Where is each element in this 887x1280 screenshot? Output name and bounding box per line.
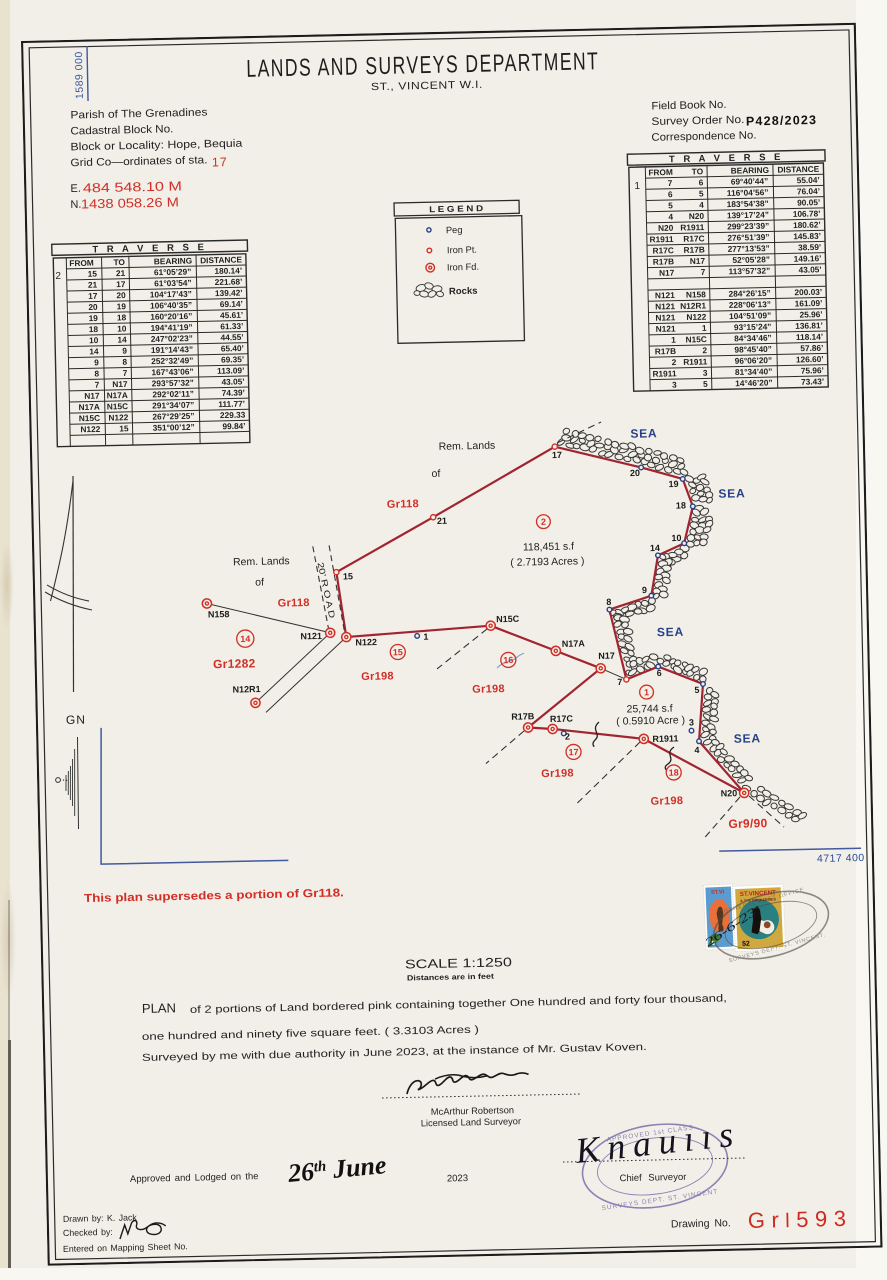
svg-text:Gr198: Gr198 [650,795,683,808]
svg-text:180.14’: 180.14’ [214,265,242,276]
svg-text:20: 20 [88,302,98,312]
svg-text:Entered on Mapping Sheet N: Entered on Mapping Sheet No. [63,1241,188,1254]
svg-text:N121: N121 [655,301,675,311]
svg-text:9: 9 [94,357,99,367]
svg-text:N17: N17 [690,256,706,266]
svg-text:5: 5 [703,379,708,389]
svg-text:R1911: R1911 [649,234,674,245]
svg-text:2: 2 [55,271,61,282]
svg-text:TO: TO [692,166,704,176]
svg-text:BEARING: BEARING [731,165,769,176]
svg-text:84°34’46”: 84°34’46” [734,333,772,344]
svg-text:T R A V E R S E: T R A V E R S E [669,152,784,165]
svg-text:98°45’40”: 98°45’40” [734,344,772,355]
svg-text:N158: N158 [208,609,230,619]
svg-text:Block or Locality: Hope, B: Block or Locality: Hope, Bequia [70,138,242,154]
svg-text:183°54’38”: 183°54’38” [727,198,769,209]
svg-text:17: 17 [116,279,126,289]
svg-text:N122: N122 [355,637,377,647]
svg-text:ST., VINCENT W.I.: ST., VINCENT W.I. [371,79,483,93]
svg-text:N17A: N17A [562,638,586,649]
svg-text:180.62’: 180.62’ [793,219,821,230]
svg-text:20: 20 [116,290,126,300]
svg-text:N122: N122 [108,412,128,422]
svg-text:N121: N121 [300,631,322,641]
svg-text:N121: N121 [655,290,675,300]
svg-text:228°06’13”: 228°06’13” [729,299,771,310]
svg-text:21: 21 [88,280,98,290]
svg-text:N15C: N15C [79,413,100,423]
svg-text:116°04’56”: 116°04’56” [727,187,769,198]
svg-text:15: 15 [393,647,403,657]
svg-text:P428/2023: P428/2023 [746,113,818,129]
svg-text:200.03’: 200.03’ [794,287,822,298]
svg-text:3: 3 [689,717,694,727]
svg-text:25.96’: 25.96’ [799,309,822,320]
svg-text:25,744 s.f: 25,744 s.f [626,703,672,716]
svg-text:113.09’: 113.09’ [217,365,244,376]
svg-text:N17A: N17A [107,390,128,400]
svg-text:N15C: N15C [496,614,520,625]
svg-text:104°51’09”: 104°51’09” [729,310,771,321]
svg-text:43.05’: 43.05’ [798,264,821,275]
svg-text:55.04’: 55.04’ [797,175,820,186]
svg-text:93°15’24”: 93°15’24” [734,321,772,332]
svg-text:R17B: R17B [653,256,674,266]
svg-text:SEA: SEA [630,426,657,441]
svg-text:15: 15 [343,571,353,581]
svg-text:Iron Pt.: Iron Pt. [447,245,477,256]
svg-text:3: 3 [703,368,708,378]
svg-text:1: 1 [702,323,707,333]
svg-text:16: 16 [503,655,513,665]
svg-text:18: 18 [117,312,127,322]
svg-text:N20: N20 [658,223,674,233]
svg-text:136.81’: 136.81’ [795,320,823,331]
svg-text:194°41’19”: 194°41’19” [150,322,192,333]
svg-text:351°00’12”: 351°00’12” [153,422,195,433]
svg-text:10: 10 [89,335,99,345]
svg-text:GN: GN [66,713,86,727]
svg-text:1589 000: 1589 000 [73,51,86,99]
svg-text:8: 8 [94,368,99,378]
svg-text:N17: N17 [598,651,615,661]
svg-text:106°40’35”: 106°40’35” [150,300,192,311]
svg-text:191°14’43”: 191°14’43” [151,344,193,355]
svg-text:69.14’: 69.14’ [220,299,243,310]
svg-text:N17A: N17A [78,402,99,412]
svg-text:Chief Surveyor: Chief Surveyor [619,1172,686,1184]
svg-text:2: 2 [541,517,546,527]
svg-text:17: 17 [212,155,228,169]
svg-text:6: 6 [699,177,704,187]
svg-text:DISTANCE: DISTANCE [200,254,242,265]
svg-text:61°05’29”: 61°05’29” [154,266,192,277]
svg-text:Iron Fd.: Iron Fd. [447,262,479,273]
svg-text:14°46’20”: 14°46’20” [735,377,773,388]
svg-text:Gr118: Gr118 [278,597,310,610]
svg-text:160°20’16”: 160°20’16” [150,311,192,322]
svg-text:Cadastral Block No.: Cadastral Block No. [70,123,173,137]
svg-text:N17: N17 [84,391,100,401]
svg-text:1: 1 [671,335,676,345]
svg-text:61°03’54”: 61°03’54” [154,278,192,289]
svg-text:Distances are in feet: Distances are in feet [407,972,495,983]
svg-text:293°57’32”: 293°57’32” [152,377,194,388]
svg-text:PLAN: PLAN [142,1000,176,1016]
svg-text:17: 17 [88,291,98,301]
svg-text:2023: 2023 [447,1173,468,1184]
svg-text:Drawing No.: Drawing No. [671,1217,731,1230]
svg-text:one hundred and ninety fiv: one hundred and ninety five square feet.… [142,1025,479,1043]
svg-text:284°26’15”: 284°26’15” [728,288,770,299]
svg-text:4: 4 [694,745,699,755]
svg-text:R17C: R17C [683,233,704,243]
svg-text:167°43’06”: 167°43’06” [151,366,193,377]
svg-text:R1911: R1911 [652,368,677,379]
svg-text:T R A V E R S E: T R A V E R S E [92,242,207,255]
svg-text:65.40’: 65.40’ [221,343,244,354]
svg-text:14: 14 [650,543,660,553]
svg-text:75.96’: 75.96’ [801,365,824,376]
svg-text:5: 5 [699,188,704,198]
svg-text:14: 14 [117,334,127,344]
svg-text:of: of [255,576,264,588]
svg-text:21: 21 [437,516,447,526]
svg-text:111.77’: 111.77’ [218,398,245,409]
svg-text:N20: N20 [689,211,705,221]
svg-text:18: 18 [676,500,686,510]
svg-text:8: 8 [122,357,127,367]
svg-text:252°32’49”: 252°32’49” [151,355,193,366]
svg-text:1438 058.26 M: 1438 058.26 M [81,194,179,211]
svg-text:2: 2 [672,357,677,367]
svg-text:4717 400: 4717 400 [817,852,865,865]
svg-text:Gr198: Gr198 [472,683,505,696]
svg-text:R17B: R17B [511,711,535,722]
svg-text:( 2.7193 Acres ): ( 2.7193 Acres ) [510,555,584,569]
svg-text:17: 17 [552,450,562,460]
svg-text:15: 15 [88,268,98,278]
svg-text:SEA: SEA [734,731,761,746]
svg-text:Surveyed by me with due a: Surveyed by me with due authority in Jun… [142,1042,647,1064]
svg-text:52°05’28”: 52°05’28” [732,254,770,265]
svg-text:5: 5 [668,200,673,210]
svg-text:10: 10 [117,323,127,333]
svg-text:38.59’: 38.59’ [798,242,821,253]
svg-text:118.14’: 118.14’ [796,331,823,342]
svg-text:L E G E N D: L E G E N D [429,203,483,214]
svg-text:14: 14 [89,346,99,356]
svg-text:9: 9 [642,585,647,595]
svg-text:69°40’44”: 69°40’44” [731,176,769,187]
svg-text:$2: $2 [742,941,750,948]
svg-text:Approved and Lodged on the: Approved and Lodged on the [130,1171,259,1185]
svg-text:292°02’11”: 292°02’11” [152,389,194,400]
svg-text:3: 3 [672,379,677,389]
svg-text:99.84’: 99.84’ [222,421,245,432]
svg-text:LANDS AND SURVEYS DEPARTMEN: LANDS AND SURVEYS DEPARTMENT [246,48,600,83]
svg-text:7: 7 [95,379,100,389]
svg-text:R1911: R1911 [652,733,678,744]
svg-text:44.55’: 44.55’ [220,332,243,343]
svg-text:7: 7 [701,267,706,277]
svg-text:8: 8 [606,597,611,607]
svg-text:Checked by:: Checked by: [63,1227,113,1238]
svg-text:126.60’: 126.60’ [796,354,824,365]
svg-text:Gr198: Gr198 [361,670,394,683]
svg-text:15: 15 [119,423,129,433]
svg-text:ST.VI: ST.VI [711,889,725,896]
svg-text:6: 6 [657,668,662,678]
svg-text:N122: N122 [686,312,706,322]
svg-text:229.33: 229.33 [220,410,246,421]
svg-text:106.78’: 106.78’ [793,208,821,219]
svg-text:FROM: FROM [69,258,94,269]
svg-text:N17: N17 [112,379,128,389]
svg-text:N20: N20 [721,788,738,798]
svg-text:R17C: R17C [652,245,673,255]
svg-text:Rem. Lands: Rem. Lands [233,555,290,568]
svg-text:FROM: FROM [648,167,673,178]
svg-text:Correspondence No.: Correspondence No. [651,129,756,143]
svg-text:6: 6 [668,189,673,199]
svg-text:N121: N121 [656,323,676,333]
svg-text:McArthur Robertson: McArthur Robertson [431,1105,514,1117]
svg-text:73.43’: 73.43’ [801,376,824,387]
svg-text:118,451 s.f: 118,451 s.f [523,540,575,553]
svg-text:2: 2 [565,731,570,741]
svg-text:484 548.10 M: 484 548.10 M [83,178,182,195]
svg-text:Grid Co—ordinates of sta.: Grid Co—ordinates of sta. [70,154,207,169]
svg-text:45.61’: 45.61’ [220,310,243,321]
svg-text:R1911: R1911 [683,356,708,367]
svg-text:This plan supersedes a por: This plan supersedes a portion of Gr118. [84,887,344,905]
svg-text:1: 1 [634,181,640,192]
svg-text:N158: N158 [686,289,706,299]
svg-text:SEA: SEA [718,486,745,501]
svg-text:104°17’43”: 104°17’43” [150,289,192,300]
svg-text:267°29’25”: 267°29’25” [152,411,194,422]
svg-text:Rocks: Rocks [449,286,478,298]
svg-text:N12R1: N12R1 [680,300,706,311]
svg-text:18: 18 [89,324,99,334]
svg-text:Gr118: Gr118 [387,498,419,511]
svg-text:291°34’07”: 291°34’07” [152,400,194,411]
svg-text:Kпauııs: Kпauııs [573,1114,735,1171]
svg-text:90.05’: 90.05’ [797,197,820,208]
svg-text:Rem. Lands: Rem. Lands [439,440,496,453]
svg-text:N15C: N15C [685,334,706,344]
svg-text:19: 19 [669,479,679,489]
svg-text:4: 4 [668,212,673,222]
svg-text:( 0.5910 Acre ): ( 0.5910 Acre ) [616,714,685,727]
svg-text:Grl593: Grl593 [748,1206,853,1233]
svg-text:R17B: R17B [655,346,676,356]
svg-text:Gr1282: Gr1282 [213,656,256,671]
svg-text:7: 7 [123,368,128,378]
svg-text:74.39’: 74.39’ [222,387,245,398]
svg-text:21: 21 [116,268,126,278]
svg-text:Gr9/90: Gr9/90 [728,816,767,831]
svg-text:1: 1 [423,632,428,642]
svg-text:113°57’32”: 113°57’32” [728,265,770,276]
svg-text:139.42’: 139.42’ [215,288,243,299]
svg-text:N17: N17 [659,267,675,277]
svg-text:N15C: N15C [107,401,128,411]
svg-text:10: 10 [671,533,681,543]
svg-text:Parish of The Grenadines: Parish of The Grenadines [70,107,208,122]
svg-text:SCALE 1:1250: SCALE 1:1250 [405,955,512,971]
svg-text:96°06’20”: 96°06’20” [735,355,773,366]
svg-text:Survey Order No.: Survey Order No. [651,114,744,128]
svg-text:26th June: 26th June [286,1150,388,1188]
svg-text:221.68’: 221.68’ [215,276,243,287]
svg-text:43.05’: 43.05’ [221,376,244,387]
svg-text:Licensed Land Surveyor: Licensed Land Surveyor [421,1116,521,1128]
svg-text:7: 7 [617,677,622,687]
svg-text:of 2 portions of Land bor: of 2 portions of Land bordered pink cont… [190,993,727,1016]
svg-text:5: 5 [694,685,699,695]
svg-text:E.: E. [70,183,81,195]
svg-text:2: 2 [702,345,707,355]
svg-text:Peg: Peg [446,225,463,235]
svg-text:DISTANCE: DISTANCE [777,164,819,175]
svg-text:19: 19 [117,301,127,311]
svg-text:18: 18 [669,768,679,778]
svg-text:TO: TO [113,257,125,267]
svg-text:9: 9 [122,346,127,356]
svg-text:1: 1 [644,687,649,697]
svg-text:Gr198: Gr198 [541,767,574,780]
svg-text:19: 19 [89,313,99,323]
svg-text:R17B: R17B [683,244,704,254]
svg-text:BEARING: BEARING [154,256,192,267]
svg-text:61.33’: 61.33’ [220,321,243,332]
svg-text:Field Book No.: Field Book No. [651,99,726,113]
svg-text:57.86’: 57.86’ [800,343,823,354]
svg-text:149.16’: 149.16’ [794,253,822,264]
svg-text:7: 7 [668,178,673,188]
svg-text:277°13’53”: 277°13’53” [728,243,770,254]
svg-text:R1911: R1911 [680,222,705,233]
svg-text:N12R1: N12R1 [232,684,260,695]
svg-text:247°02’23”: 247°02’23” [151,333,193,344]
svg-text:139°17’24”: 139°17’24” [727,209,769,220]
svg-text:276°51’39”: 276°51’39” [727,232,769,243]
svg-text:69.35’: 69.35’ [221,354,244,365]
svg-text:17: 17 [568,747,578,757]
svg-text:of: of [431,468,440,480]
svg-text:76.04’: 76.04’ [797,186,820,197]
svg-text:299°23’39”: 299°23’39” [727,221,769,232]
svg-text:SEA: SEA [657,625,684,640]
svg-text:N121: N121 [655,312,675,322]
svg-text:N122: N122 [80,424,100,434]
svg-text:4: 4 [699,200,704,210]
svg-text:81°34’40”: 81°34’40” [735,366,773,377]
svg-text:20: 20 [630,468,640,478]
svg-text:R17C: R17C [550,714,574,725]
svg-text:14: 14 [240,634,250,644]
svg-text:161.09’: 161.09’ [795,298,823,309]
svg-text:145.83’: 145.83’ [793,231,821,242]
svg-text:Drawn by: K. Jack: Drawn by: K. Jack [63,1212,138,1224]
